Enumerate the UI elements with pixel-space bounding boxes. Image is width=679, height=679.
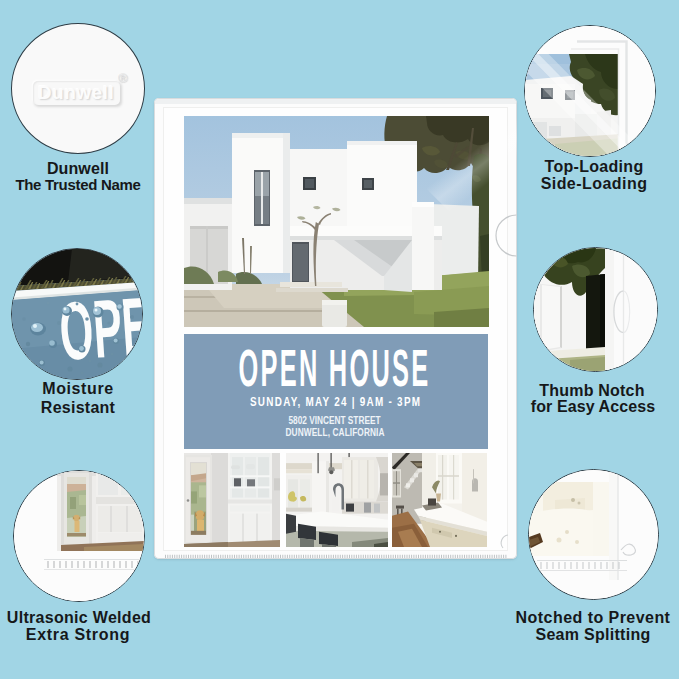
svg-text:OPEN: OPEN <box>57 278 142 377</box>
